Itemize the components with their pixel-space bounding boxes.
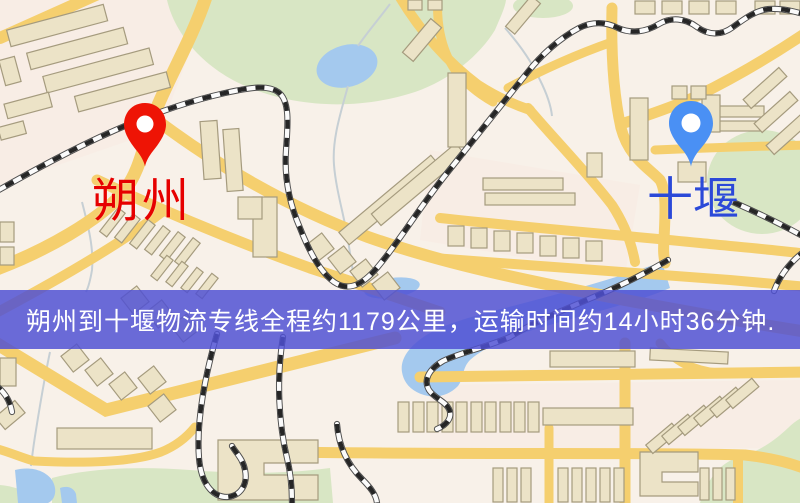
route-info-text: 朔州到十堰物流专线全程约1179公里，运输时间约14小时36分钟. [26,302,775,338]
logistics-route-map: 朔州 十堰 朔州到十堰物流专线全程约1179公里，运输时间约14小时36分钟. [0,0,800,503]
destination-city-label: 十堰 [647,176,739,222]
origin-pin-icon[interactable] [122,102,168,168]
origin-city-label: 朔州 [92,177,192,224]
map-canvas[interactable] [0,0,800,503]
route-info-banner: 朔州到十堰物流专线全程约1179公里，运输时间约14小时36分钟. [0,290,800,349]
destination-pin-icon[interactable] [667,100,715,168]
